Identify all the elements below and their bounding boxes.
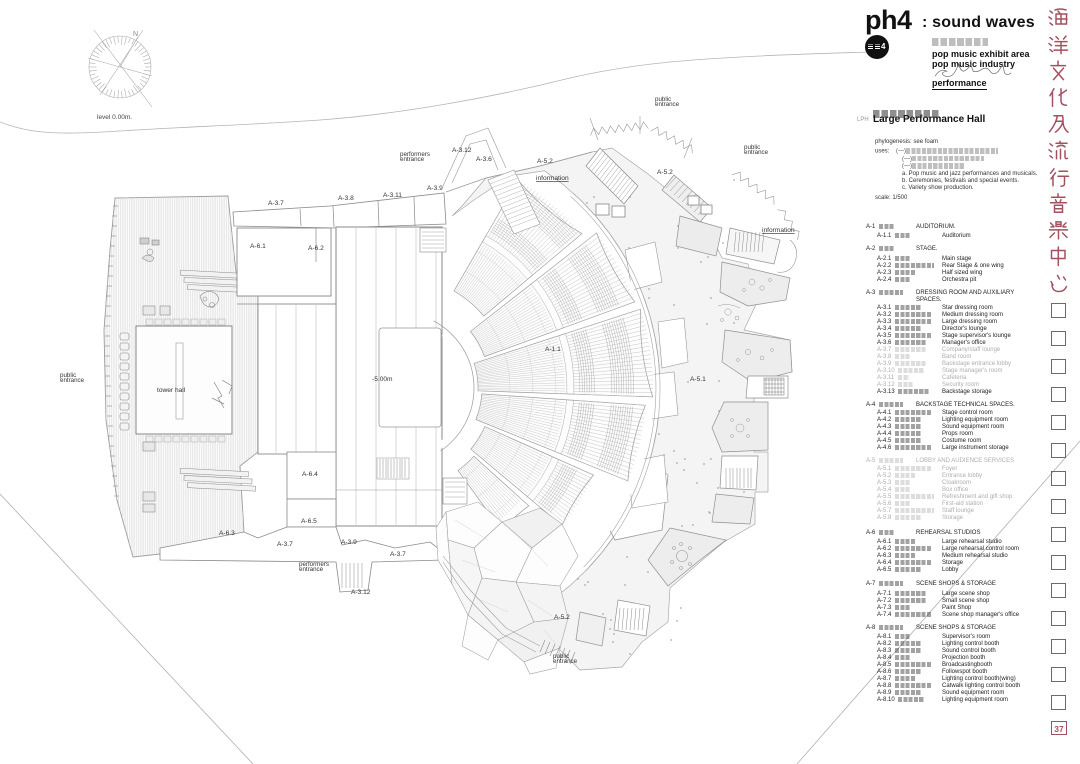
svg-text:A-6.1: A-6.1 [250,243,266,250]
svg-text:entrance: entrance [744,149,769,156]
svg-text:entrance: entrance [655,101,680,108]
svg-text:A-6.2: A-6.2 [308,245,324,252]
svg-text:entrance: entrance [299,566,324,573]
svg-text:N: N [133,31,138,38]
svg-text:information: information [536,175,569,182]
svg-text:A-5.1: A-5.1 [690,376,706,383]
svg-text:A-3.6: A-3.6 [476,156,492,163]
svg-text:A-3.7: A-3.7 [277,541,293,548]
svg-text:A-5.2: A-5.2 [554,614,570,621]
svg-text:entrance: entrance [553,658,578,665]
svg-text:tower hall: tower hall [157,387,186,394]
svg-text:information: information [762,227,795,234]
svg-text:A-6.4: A-6.4 [302,471,318,478]
svg-text:A-3.9: A-3.9 [341,539,357,546]
svg-text:level 0.00m.: level 0.00m. [97,114,132,121]
svg-text:A-6.3: A-6.3 [219,530,235,537]
svg-text:entrance: entrance [60,377,85,384]
svg-text:A-3.7: A-3.7 [268,200,284,207]
svg-text:A-3.8: A-3.8 [338,195,354,202]
svg-text:A-3.7: A-3.7 [390,551,406,558]
svg-text:A-3.9: A-3.9 [427,185,443,192]
svg-text:A-3.11: A-3.11 [383,192,402,199]
svg-text:A-3.12: A-3.12 [452,147,472,154]
svg-text:entrance: entrance [400,156,425,163]
svg-text:A-5.2: A-5.2 [537,158,553,165]
svg-text:A-5.2: A-5.2 [657,169,673,176]
svg-text:A-3.12: A-3.12 [351,589,371,596]
svg-text:A-6.5: A-6.5 [301,518,317,525]
svg-text:-5.00m: -5.00m [372,376,393,383]
svg-text:A-1.1: A-1.1 [545,346,561,353]
